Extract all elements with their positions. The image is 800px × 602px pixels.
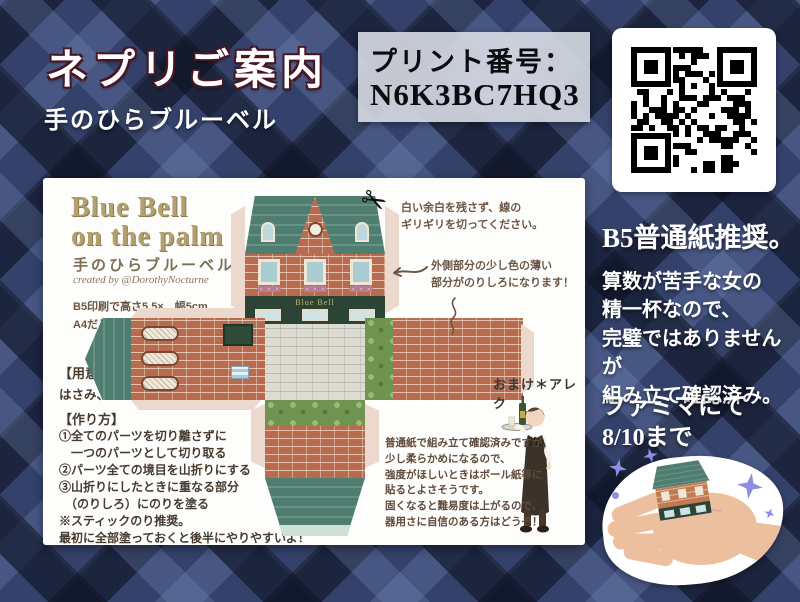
facade-window [258,259,280,285]
arched-window [141,326,179,341]
flower-box [349,286,373,292]
paper-strength-note: 普通紙で組み立て確認済みですが、 少し柔らかめになるので、 強度がほしいときはボ… [385,436,553,531]
sparkle-dot-icon [612,492,619,499]
glue-tab [385,206,399,314]
print-number-value: N6K3BC7HQ3 [370,79,578,112]
howto-title: 【作り方】 [59,409,124,428]
accuracy-note-line: 完璧ではありませんが [602,325,800,382]
flower-box [303,286,327,292]
net-back-wall [265,426,365,478]
arched-window [141,376,179,391]
accuracy-note: 算数が苦手な女の 精一杯なので、 完璧ではありませんが 組み立て確認済み。 [602,268,800,410]
net-left-wall [131,318,265,400]
hand-photo-sticker [598,448,790,596]
paper-note-line: 少し柔らかめになるので、 [385,452,553,468]
flower-box [257,286,281,292]
accuracy-note-line: 算数が苦手な女の [602,268,800,296]
qr-finder-icon [631,133,671,173]
facade-brick-wall [245,254,385,296]
net-stone-wall [265,324,365,400]
glue-tab [251,404,265,468]
print-number-box: プリント番号： N6K3BC7HQ3 [358,32,590,122]
storefront-sign: Blue Bell [245,298,385,307]
qr-code [612,28,776,192]
qr-finder-icon [717,47,757,87]
flyer: ネプリご案内 手のひらブルーベル プリント番号： N6K3BC7HQ3 Blue… [0,0,800,602]
sparkle-icon [608,458,629,479]
cut-note-line: 白い余白を残さず、線の [401,200,543,217]
credit-line: created by @DorothyNocturne [73,274,209,286]
logo-subtitle: 手のひらブルーベル [73,254,235,275]
glue-tab [231,206,245,314]
cut-note: 白い余白を残さず、線の ギリギリを切ってください。 [401,200,543,234]
dormer-window [355,222,369,242]
cut-note-line: ギリギリを切ってください。 [401,217,543,234]
glue-note: 外側部分の少し色の薄い 部分がのりしろになります！ [431,258,574,292]
mini-window [678,488,687,498]
glue-tab [131,400,261,410]
qr-finder-icon [631,47,671,87]
paper-note-line: 貼るとよさそうです。 [385,483,553,499]
hedge [365,318,393,400]
logo-title: Blue Bell on the palm [71,194,224,251]
mini-window [661,491,670,501]
storefront: Blue Bell [245,296,385,324]
paper-note-line: 固くなると難易度は上がるので、 [385,499,553,515]
facade-window [304,259,326,285]
storefront-window [302,309,328,321]
facade-window [350,259,372,285]
glue-note-line: 外側部分の少し色の薄い [431,258,574,275]
print-number-label: プリント番号： [370,40,578,79]
logo-line2: on the palm [71,223,224,252]
glue-tab [365,404,379,468]
paper-note-line: 器用さに自信のある方はどうぞ！ [385,515,553,531]
step-line: 最初に全部塗っておくと後半にやりやすいよ！ [59,530,310,547]
paper-size-recommendation: B5普通紙推奨。 [602,216,796,255]
paper-note-line: 普通紙で組み立て確認済みですが、 [385,436,553,452]
arched-window [141,351,179,366]
step-line: ※スティックのり推奨。 [59,513,310,530]
instruction-sheet: Blue Bell on the palm 手のひらブルーベル created … [43,178,585,545]
papercraft-building-photo [649,459,715,523]
page-title: ネプリご案内 [46,36,328,97]
qr-pattern [631,47,757,173]
page-subtitle: 手のひらブルーベル [44,100,278,135]
availability-note: ファミマにて 8/10まで [602,392,746,454]
curved-arrow-icon [391,264,429,280]
side-door [223,324,253,346]
hedge [265,400,365,426]
glue-tab [131,308,261,318]
mini-window [694,486,703,496]
dormer-window [261,222,275,242]
squiggle-icon [445,296,463,336]
availability-line: ファミマにて [602,392,746,423]
striped-awning [231,366,249,379]
accuracy-note-line: 精一杯なので、 [602,296,800,324]
paper-note-line: 強度がほしいときはボール紙等に [385,468,553,484]
round-window [308,222,323,237]
glue-note-line: 部分がのりしろになります！ [431,275,574,292]
logo-line1: Blue Bell [71,194,224,223]
